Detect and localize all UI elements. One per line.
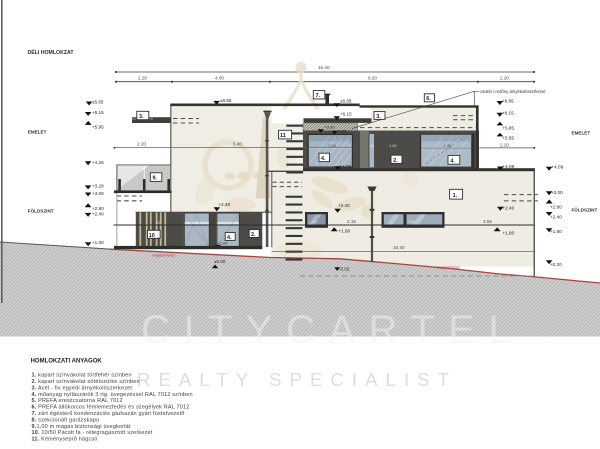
svg-text:DÉLI HOMLOKZAT: DÉLI HOMLOKZAT (28, 48, 75, 56)
svg-text:3.55: 3.55 (483, 219, 492, 224)
svg-text:+0.20: +0.20 (550, 262, 562, 267)
svg-text:+4.28: +4.28 (92, 160, 104, 165)
svg-text:+2.40: +2.40 (219, 202, 231, 207)
svg-text:4.: 4. (227, 235, 232, 241)
svg-text:2. kapart színvakolat sötétszü: 2. kapart színvakolat sötétszürke színbe… (32, 379, 140, 385)
svg-text:+5.55: +5.55 (336, 128, 347, 133)
svg-text:+2.40: +2.40 (338, 203, 350, 208)
svg-text:+2.40: +2.40 (503, 205, 515, 210)
svg-text:EMELET: EMELET (28, 129, 47, 134)
svg-text:+2.80: +2.80 (550, 205, 562, 210)
svg-text:4. műanyag nyílászárók 3 rtg.: 4. műanyag nyílászárók 3 rtg. üvegezésse… (32, 392, 193, 398)
svg-text:7. zárt égésterű kondenzációs: 7. zárt égésterű kondenzációs gázkazán g… (32, 411, 185, 417)
svg-text:2.20: 2.20 (500, 142, 509, 147)
svg-text:3.: 3. (376, 114, 381, 120)
svg-text:REALTY SPECIALIST: REALTY SPECIALIST (137, 369, 457, 390)
svg-text:+5.55: +5.55 (502, 135, 514, 140)
svg-text:2.20: 2.20 (138, 76, 147, 81)
svg-text:6.: 6. (426, 96, 431, 102)
svg-text:+2.40: +2.40 (92, 211, 104, 216)
svg-text:-0.02: -0.02 (339, 266, 350, 271)
svg-text:3.: 3. (139, 114, 144, 120)
svg-text:2.20: 2.20 (500, 76, 509, 81)
svg-text:+2.80: +2.80 (92, 206, 104, 211)
svg-text:+5.95: +5.95 (325, 125, 336, 130)
svg-text:.90: .90 (312, 220, 317, 224)
svg-text:+1.80: +1.80 (339, 229, 351, 234)
svg-text:3. Acél - fix egyedi árnyékoló: 3. Acél - fix egyedi árnyékolószerkezet (32, 385, 133, 391)
svg-text:1.: 1. (453, 193, 458, 199)
svg-text:5.40: 5.40 (233, 142, 242, 147)
svg-text:6. PREFA állókorcos fémlemezfe: 6. PREFA állókorcos fémlemezfedés és sze… (32, 405, 190, 411)
svg-text:9.1,00 m magas biztonsági üveg: 9.1,00 m magas biztonsági üvegkorlát (32, 424, 131, 430)
svg-text:+6.15: +6.15 (340, 112, 352, 117)
svg-text:16.40: 16.40 (318, 65, 330, 70)
svg-text:+3.00: +3.00 (551, 190, 563, 195)
svg-text:FÖLDSZINT: FÖLDSZINT (28, 207, 54, 213)
svg-text:FÖLDSZINT: FÖLDSZINT (572, 206, 598, 212)
svg-text:csukló / redőny árnyékolószerk: csukló / redőny árnyékolószerkezet (480, 89, 546, 94)
svg-text:±6.65: ±6.65 (340, 99, 352, 104)
svg-text:4.: 4. (321, 156, 326, 162)
svg-text:2.: 2. (251, 232, 256, 238)
svg-text:4.00: 4.00 (215, 76, 224, 81)
svg-text:2.20: 2.20 (137, 142, 146, 147)
svg-text:2.30: 2.30 (444, 143, 453, 148)
svg-text:±6.65: ±6.65 (92, 99, 104, 104)
svg-text:7.: 7. (316, 93, 321, 99)
svg-text:+6.15: +6.15 (502, 110, 514, 115)
svg-text:+2.40: +2.40 (550, 215, 562, 220)
svg-text:5. PREFA ereszcsatorna RAL 70: 5. PREFA ereszcsatorna RAL 7012 (32, 398, 123, 404)
svg-text:meglévő terep: meglévő terep (437, 266, 460, 270)
svg-text:10. 10/50 Pácolt fa - rétegrag: 10. 10/50 Pácolt fa - rétegragasztott sz… (32, 430, 153, 436)
svg-text:+1.80: +1.80 (503, 230, 515, 235)
svg-text:+4.09: +4.09 (503, 164, 515, 169)
svg-text:10.40: 10.40 (393, 245, 405, 250)
svg-text:+5.95: +5.95 (92, 125, 104, 130)
svg-text:+1.80: +1.80 (550, 229, 562, 234)
svg-text:meglévő terep: meglévő terep (152, 254, 175, 258)
svg-text:9.: 9. (153, 176, 158, 182)
svg-text:+3.00: +3.00 (92, 191, 104, 196)
svg-text:8. szekcionált garázskapu: 8. szekcionált garázskapu (32, 417, 100, 423)
svg-text:80: 80 (157, 221, 161, 225)
svg-text:+3.28: +3.28 (92, 184, 104, 189)
svg-text:1.10: 1.10 (252, 221, 259, 225)
svg-text:+6.15: +6.15 (92, 110, 104, 115)
svg-text:+5.95: +5.95 (502, 125, 514, 130)
svg-text:+4.09: +4.09 (340, 164, 352, 169)
svg-text:.65: .65 (369, 144, 374, 148)
svg-text:2.: 2. (393, 158, 398, 164)
svg-text:11. Kéményseprő hágcsó: 11. Kéményseprő hágcsó (32, 437, 98, 443)
svg-text:EMELET: EMELET (572, 131, 591, 136)
svg-text:±0.00: ±0.00 (214, 259, 226, 264)
svg-text:8.20: 8.20 (368, 76, 377, 81)
svg-text:1. kapart színvakolat törtfehé: 1. kapart színvakolat törtfehér színben (32, 373, 132, 379)
svg-text:2.10: 2.10 (329, 143, 338, 148)
svg-text:11: 11 (280, 133, 286, 139)
svg-text:2.60: 2.60 (408, 220, 415, 224)
svg-text:+1.00: +1.00 (218, 240, 229, 245)
svg-text:4.: 4. (450, 158, 455, 164)
svg-text:2.15: 2.15 (347, 219, 356, 224)
svg-text:+1.00: +1.00 (92, 240, 104, 245)
svg-text:HOMLOKZATI ANYAGOK: HOMLOKZATI ANYAGOK (31, 358, 103, 364)
svg-text:+4.09: +4.09 (552, 165, 564, 170)
svg-text:+6.65: +6.65 (502, 99, 514, 104)
svg-text:1.80: 1.80 (389, 143, 398, 148)
svg-text:CITYCARTEL: CITYCARTEL (141, 308, 524, 352)
svg-text:±6.65: ±6.65 (220, 98, 232, 103)
svg-text:10: 10 (149, 233, 155, 239)
